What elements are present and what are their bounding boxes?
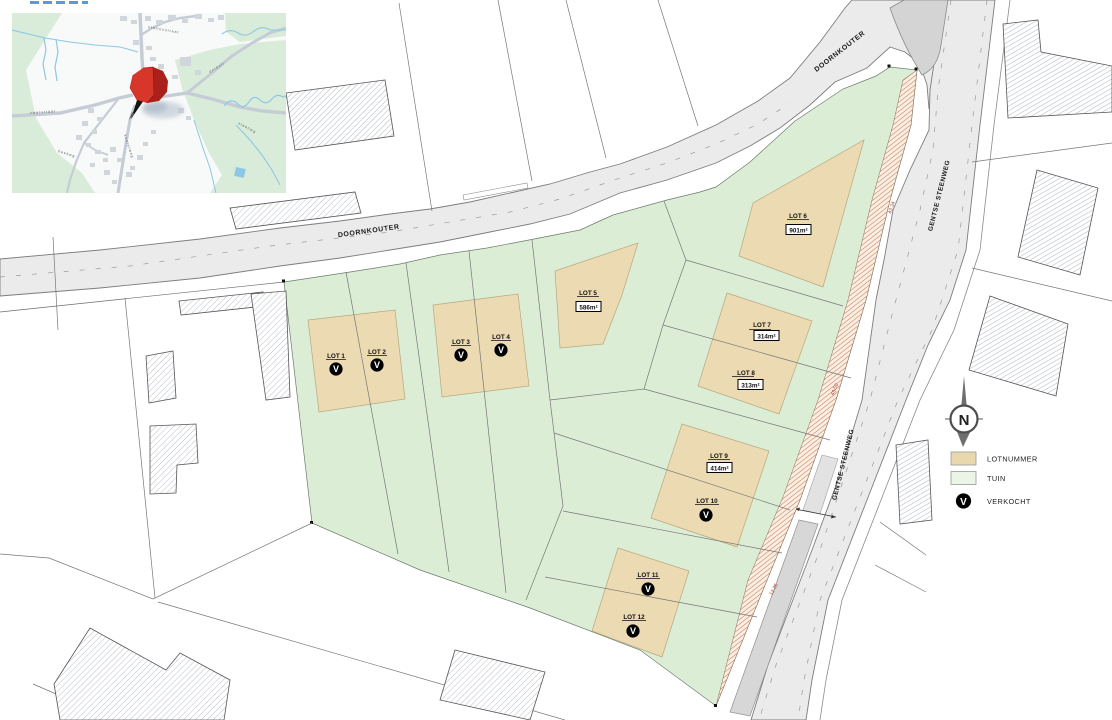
- svg-text:LOT 10: LOT 10: [696, 498, 718, 505]
- svg-text:V: V: [703, 510, 709, 520]
- svg-text:LOT 3: LOT 3: [452, 339, 470, 346]
- svg-text:LOT 1: LOT 1: [327, 353, 345, 360]
- svg-text:V: V: [498, 345, 504, 355]
- svg-text:LOT 7: LOT 7: [753, 322, 771, 329]
- svg-text:TUIN: TUIN: [987, 474, 1006, 483]
- svg-text:LOT 8: LOT 8: [737, 370, 755, 377]
- svg-text:LOT 12: LOT 12: [623, 614, 645, 621]
- svg-text:LOT 11: LOT 11: [638, 572, 659, 579]
- svg-text:V: V: [630, 626, 636, 636]
- svg-text:LOT 2: LOT 2: [368, 349, 386, 356]
- svg-text:N: N: [959, 412, 970, 429]
- svg-text:LOT 6: LOT 6: [789, 213, 807, 220]
- svg-text:LOTNUMMER: LOTNUMMER: [987, 455, 1038, 464]
- svg-text:314m²: 314m²: [757, 333, 775, 340]
- svg-text:V: V: [645, 584, 651, 594]
- svg-text:LOT 9: LOT 9: [710, 453, 728, 460]
- svg-text:LOT 5: LOT 5: [579, 290, 597, 297]
- svg-text:901m²: 901m²: [789, 227, 807, 234]
- svg-text:V: V: [333, 364, 339, 374]
- svg-text:VERKOCHT: VERKOCHT: [987, 497, 1031, 506]
- svg-text:V: V: [458, 350, 464, 360]
- svg-text:V: V: [374, 360, 380, 370]
- svg-text:LOT 4: LOT 4: [492, 334, 510, 341]
- svg-text:V: V: [960, 497, 967, 508]
- svg-text:586m²: 586m²: [579, 304, 597, 311]
- svg-text:414m²: 414m²: [710, 465, 728, 472]
- svg-text:313m²: 313m²: [741, 382, 759, 389]
